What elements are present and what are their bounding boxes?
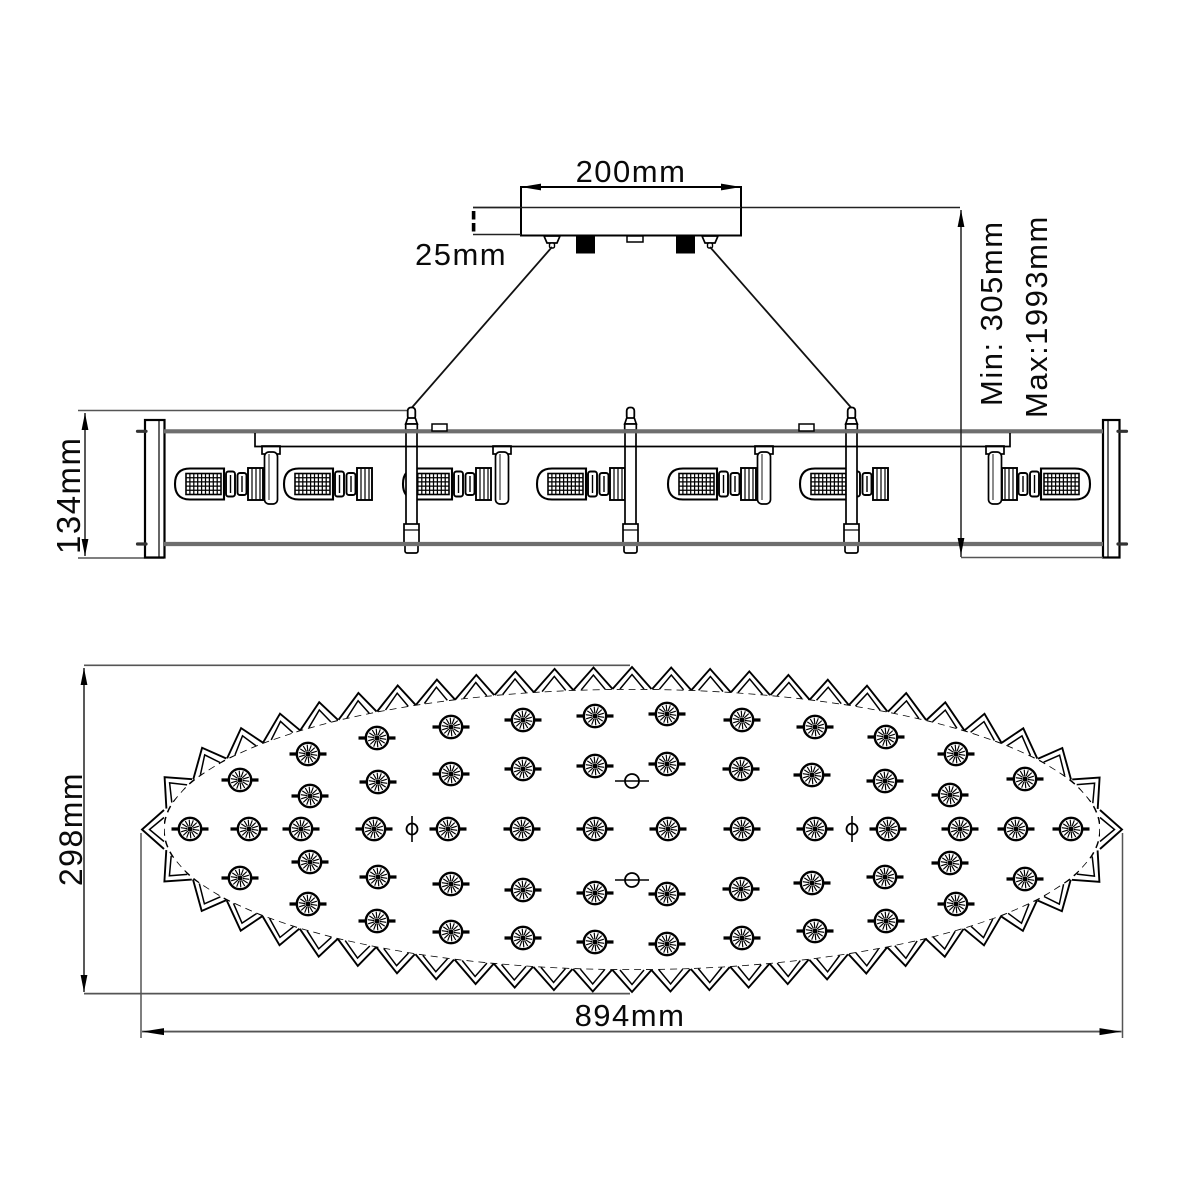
svg-text:200mm: 200mm (576, 154, 687, 189)
svg-text:134mm: 134mm (50, 436, 87, 554)
svg-text:Max:1993mm: Max:1993mm (1019, 215, 1054, 418)
svg-text:25mm: 25mm (415, 237, 507, 272)
svg-text:Min: 305mm: Min: 305mm (974, 220, 1009, 406)
svg-text:298mm: 298mm (53, 772, 89, 886)
svg-text:894mm: 894mm (575, 998, 686, 1033)
